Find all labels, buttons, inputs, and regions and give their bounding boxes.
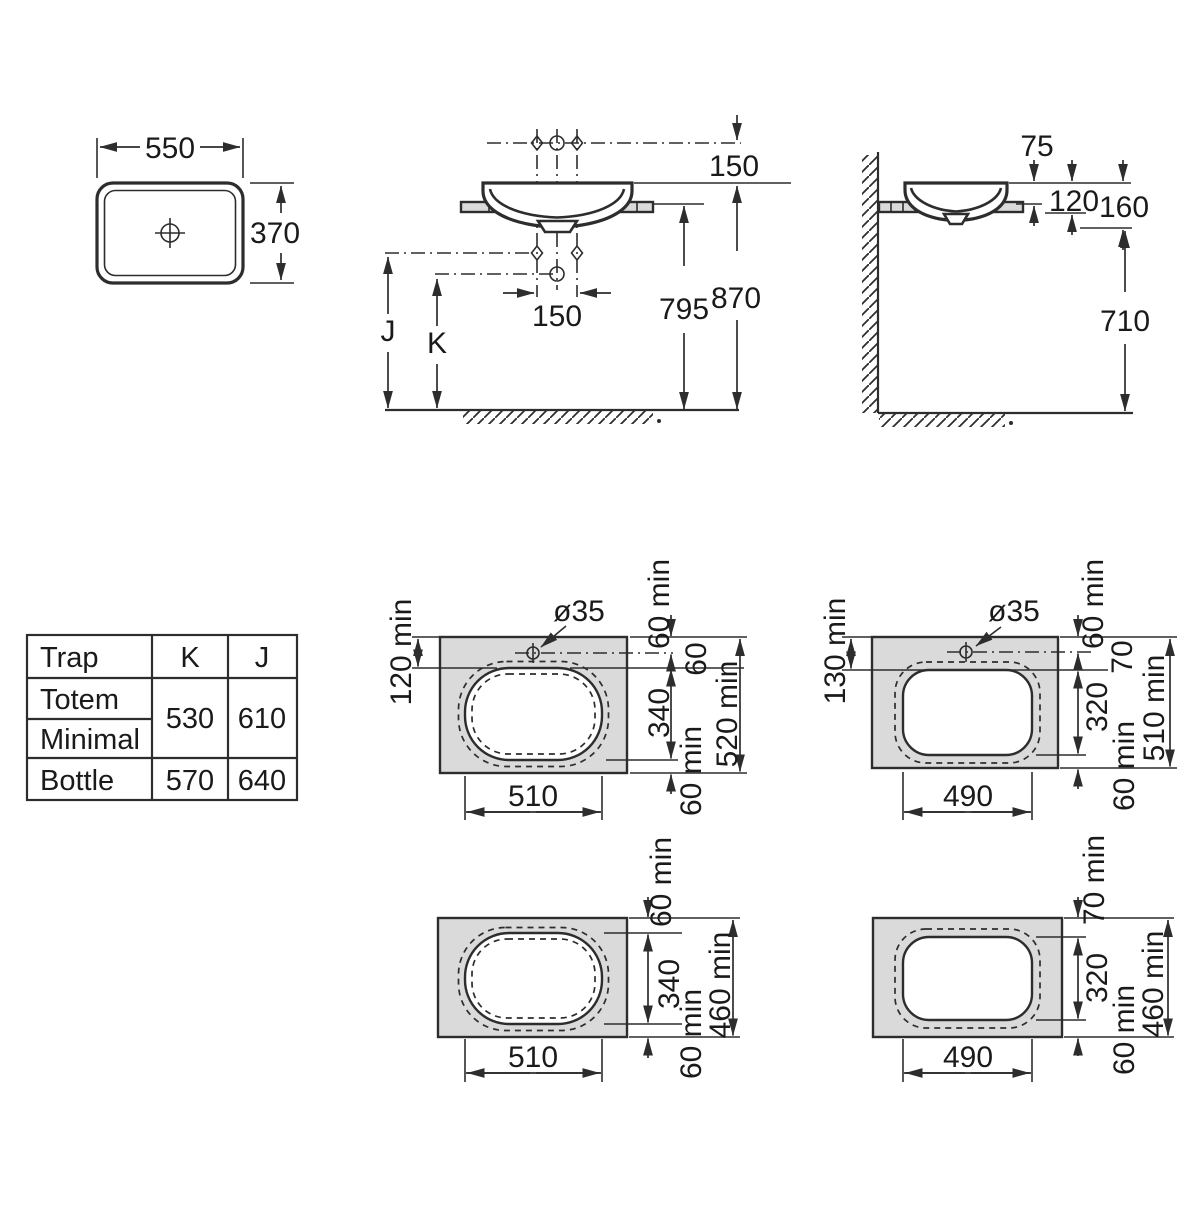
table-row-totem: Totem: [40, 684, 119, 716]
bottom-margin-dim: 60 min: [1108, 721, 1141, 811]
cutout-oval-plain: 60 min 340 60 min 460 min 510: [438, 837, 740, 1082]
cutout-rect-tap: ø35 130 min 60 min 70 320 60 min 510 min…: [819, 559, 1177, 820]
wall-hatch: [862, 155, 878, 413]
overall-depth-dim: 520 min: [711, 661, 744, 768]
cutout-width-dim: 490: [943, 780, 993, 813]
tap-hole-dia-label: ø35: [553, 595, 605, 628]
cutout-oval-tap: ø35 120 min 60 min 60 340 60 min 520 min…: [385, 559, 747, 820]
top-margin-dim: 60 min: [645, 837, 678, 927]
rim-to-basin-bottom-dim: 160: [1099, 191, 1149, 224]
cutout-outline: [903, 670, 1032, 755]
edge-to-tap-dim: 60 min: [1077, 559, 1110, 649]
cutout-width-dim: 490: [943, 1041, 993, 1074]
clearance-height-dim: 710: [1100, 305, 1150, 338]
bottom-margin-dim: 60 min: [675, 726, 708, 816]
cutout-width-dim: 510: [508, 780, 558, 813]
overall-depth-dim: 510 min: [1138, 655, 1171, 762]
table-header-trap: Trap: [40, 642, 99, 674]
plan-width-dim: 550: [145, 132, 195, 165]
hatch-dot: [657, 419, 661, 423]
edge-to-cutout-dim: 130 min: [819, 598, 852, 705]
table-value-totem-minimal-k: 530: [166, 703, 214, 735]
front-view: 150 870 795 J K 150: [381, 115, 792, 424]
hatch-dot: [1009, 421, 1013, 425]
top-margin-dim: 70 min: [1078, 835, 1111, 925]
plan-view: 550 370: [97, 132, 300, 283]
spec-sheet-page: 550 370: [0, 0, 1200, 1200]
table-row-bottle: Bottle: [40, 765, 114, 797]
tap-to-cutout-dim: 60: [680, 642, 713, 675]
table-header-j: J: [255, 642, 270, 674]
rim-height-dim: 870: [711, 282, 761, 315]
tap-spacing-dim: 150: [532, 300, 582, 333]
trap-k-dim: K: [427, 327, 447, 360]
counter-height-dim: 795: [659, 293, 709, 326]
edge-to-cutout-dim: 120 min: [385, 599, 418, 706]
table-header-k: K: [180, 642, 200, 674]
plan-depth-dim: 370: [250, 217, 300, 250]
side-view: 75 120 160 710: [862, 130, 1150, 427]
trap-table: Trap K J Totem Minimal Bottle 530 610 57…: [27, 635, 297, 800]
overall-depth-dim: 460 min: [704, 932, 737, 1039]
table-value-bottle-j: 640: [238, 765, 286, 797]
cutout-rect-plain: 70 min 320 60 min 460 min 490: [873, 835, 1174, 1082]
floor-hatch: [879, 414, 1005, 427]
tap-height-dim: 150: [709, 150, 759, 183]
table-value-bottle-k: 570: [166, 765, 214, 797]
trap-j-dim: J: [381, 315, 396, 348]
cutout-width-dim: 510: [508, 1041, 558, 1074]
tap-hole-dia-label: ø35: [988, 595, 1040, 628]
rim-above-counter-dim: 75: [1020, 130, 1053, 163]
rim-to-counter-bottom-dim: 120: [1049, 185, 1099, 218]
overall-depth-dim: 460 min: [1137, 931, 1170, 1038]
edge-to-tap-dim: 60 min: [643, 559, 676, 649]
tap-to-cutout-dim: 70: [1106, 640, 1139, 673]
table-row-minimal: Minimal: [40, 724, 140, 756]
floor-hatch: [463, 411, 653, 424]
cutout-depth-dim: 340: [643, 688, 676, 738]
table-value-totem-minimal-j: 610: [238, 703, 286, 735]
basin-drain-front: [538, 221, 577, 232]
basin-drain-side: [944, 214, 968, 224]
basin-technical-drawing: 550 370: [0, 0, 1200, 1200]
cutout-outline: [903, 937, 1032, 1020]
